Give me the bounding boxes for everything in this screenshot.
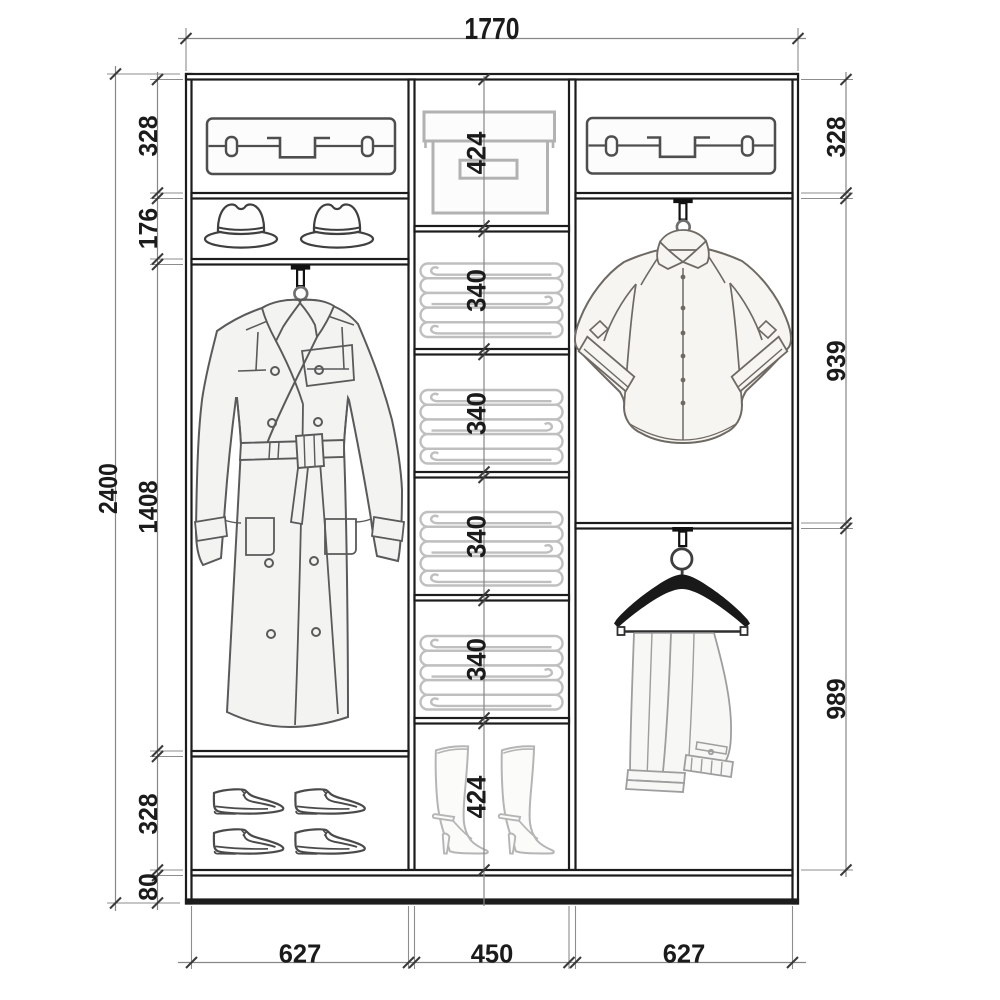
svg-text:1770: 1770 (464, 11, 519, 45)
svg-text:328: 328 (822, 116, 851, 157)
svg-text:340: 340 (461, 392, 492, 435)
svg-text:2400: 2400 (95, 463, 124, 514)
svg-text:424: 424 (461, 131, 492, 174)
svg-text:328: 328 (134, 793, 163, 834)
svg-text:627: 627 (663, 940, 706, 968)
svg-text:176: 176 (134, 208, 163, 249)
svg-text:450: 450 (471, 940, 514, 968)
svg-text:989: 989 (822, 678, 851, 719)
svg-text:328: 328 (134, 115, 163, 156)
svg-text:340: 340 (461, 515, 492, 558)
svg-text:340: 340 (461, 269, 492, 312)
svg-text:80: 80 (134, 873, 163, 900)
svg-text:1408: 1408 (134, 480, 163, 533)
svg-text:340: 340 (461, 638, 492, 681)
svg-text:939: 939 (822, 340, 851, 381)
svg-text:424: 424 (461, 775, 492, 818)
svg-text:627: 627 (279, 940, 322, 968)
